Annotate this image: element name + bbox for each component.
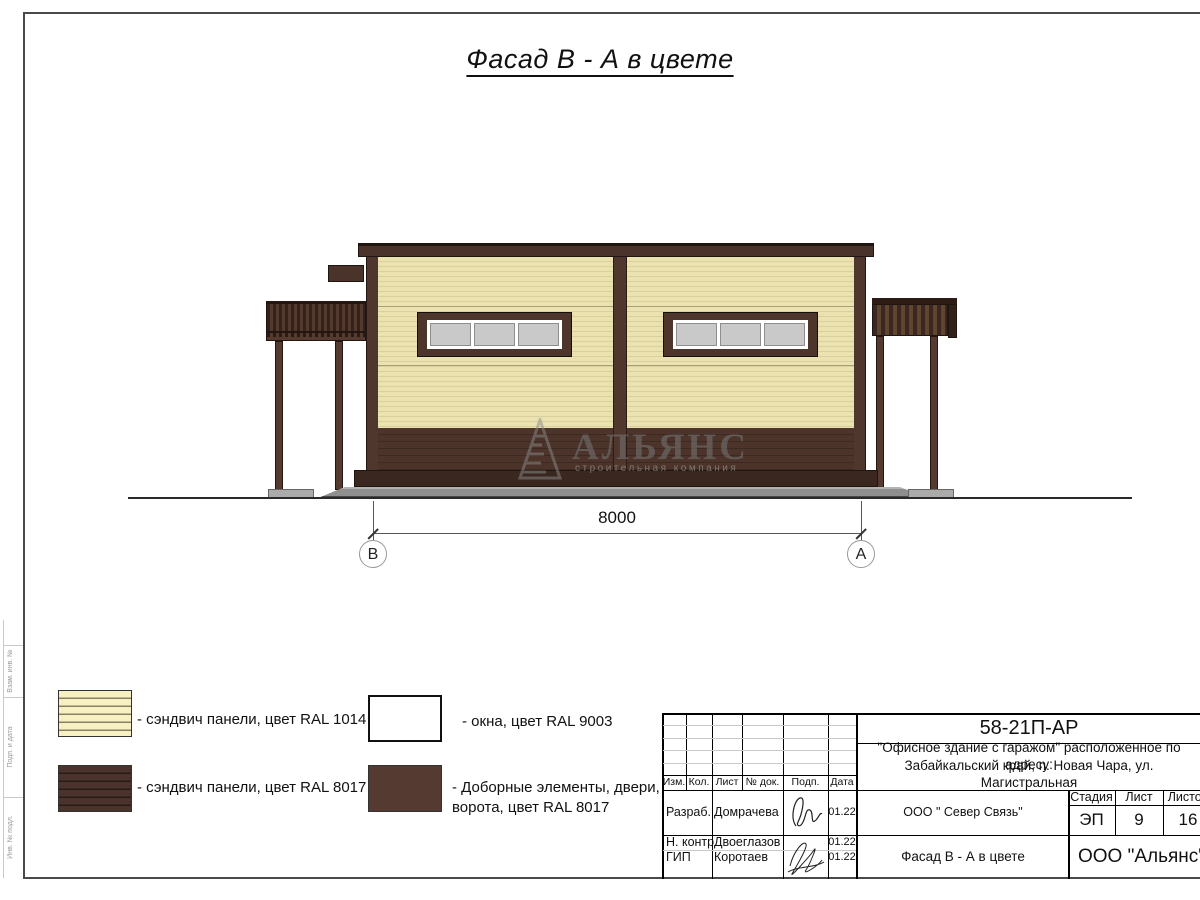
left-canopy-post xyxy=(335,341,343,490)
stamp-col-podp: Подп. xyxy=(783,775,828,790)
stamp-company: ООО "Альянс" xyxy=(1070,835,1200,879)
window-pane xyxy=(720,323,761,346)
stamp-doc-number: 58-21П-АР xyxy=(858,714,1200,743)
window-frame xyxy=(673,320,808,349)
window-pane xyxy=(518,323,559,346)
side-strip-line xyxy=(3,620,4,878)
stamp-thin-row xyxy=(663,738,856,739)
base-dark-band xyxy=(354,470,878,487)
window-pane xyxy=(676,323,717,346)
stamp-col-data: Дата xyxy=(828,775,856,790)
roof-beam-left xyxy=(328,265,364,282)
window-pane xyxy=(764,323,805,346)
axis-marker-b: В xyxy=(359,540,387,568)
stamp-thin-row xyxy=(663,750,856,751)
window-left xyxy=(417,312,572,357)
stamp-list-label: Лист xyxy=(1115,790,1163,805)
stamp-col-ndok: № док. xyxy=(742,775,783,790)
window-pane xyxy=(430,323,471,346)
left-canopy-roof xyxy=(266,301,366,332)
stamp-date: 01.22 xyxy=(828,790,856,835)
side-strip-label: Подп. и дата xyxy=(7,697,21,797)
stamp-project-line2: Забайкальский край, п. Новая Чара, ул. М… xyxy=(858,765,1200,785)
frame-top xyxy=(23,12,1200,14)
right-canopy-roof xyxy=(872,304,948,336)
corner-trim-left xyxy=(366,257,378,470)
drawing-sheet: Взам. инв. № Подп. и дата Инв. № подл. Ф… xyxy=(0,0,1200,900)
legend-swatch-ral8017-extras xyxy=(368,765,442,812)
legend-label: - Доборные элементы, двери, ворота, цвет… xyxy=(452,778,667,819)
side-strip-label: Взам. инв. № xyxy=(7,645,21,697)
stamp-thin-row xyxy=(663,725,856,726)
center-divider xyxy=(613,257,627,470)
axis-marker-a: А xyxy=(847,540,875,568)
corner-trim-right xyxy=(854,257,866,470)
stamp-stage-value: ЭП xyxy=(1068,805,1115,835)
stamp-role: ГИП xyxy=(664,850,714,865)
window-pane xyxy=(474,323,515,346)
stamp-thin-row xyxy=(663,763,856,764)
window-right xyxy=(663,312,818,357)
roof-band xyxy=(358,243,874,257)
right-canopy-post xyxy=(876,336,884,490)
ground-line xyxy=(128,497,1132,499)
stamp-name: Домрачева xyxy=(714,790,783,835)
legend-label: - сэндвич панели, цвет RAL 1014 xyxy=(137,710,397,730)
stamp-list-value: 9 xyxy=(1115,805,1163,835)
legend-swatch-ral1014 xyxy=(58,690,132,737)
dim-extension-left xyxy=(373,501,374,543)
legend-swatch-ral8017-panels xyxy=(58,765,132,812)
dim-extension-right xyxy=(861,501,862,543)
stamp-listov-label: Листов xyxy=(1163,790,1200,805)
legend-label: - окна, цвет RAL 9003 xyxy=(462,712,702,732)
stamp-sheet-name: Фасад В - А в цвете xyxy=(858,835,1068,879)
stamp-col-izm: Изм. xyxy=(662,775,686,790)
page-title: Фасад В - А в цвете xyxy=(0,44,1200,75)
stamp-stage-label: Стадия xyxy=(1068,790,1115,805)
right-canopy-post xyxy=(930,336,938,490)
stamp-name: Двоеглазов xyxy=(714,835,783,850)
dimension-line xyxy=(373,533,862,534)
stamp-org: ООО " Север Связь" xyxy=(858,790,1068,835)
stamp-name: Коротаев xyxy=(714,850,783,865)
legend-swatch-ral9003 xyxy=(368,695,442,742)
dimension-value: 8000 xyxy=(597,508,637,528)
signature xyxy=(786,792,826,834)
window-frame xyxy=(427,320,562,349)
left-canopy-beam xyxy=(266,332,366,341)
stamp-listov-value: 16 xyxy=(1163,805,1200,835)
stamp-col-list: Лист xyxy=(712,775,742,790)
stamp-role: Разраб. xyxy=(664,790,714,835)
right-canopy-end xyxy=(948,304,957,338)
stamp-date: 01.22 xyxy=(828,835,856,850)
legend-label: - сэндвич панели, цвет RAL 8017 xyxy=(137,778,397,798)
frame-left xyxy=(23,12,25,879)
stamp-col-kol: Кол. xyxy=(686,775,712,790)
side-strip-label: Инв. № подл. xyxy=(7,797,21,877)
stamp-date: 01.22 xyxy=(828,850,856,865)
left-canopy-post xyxy=(275,341,283,490)
signature xyxy=(784,836,828,878)
